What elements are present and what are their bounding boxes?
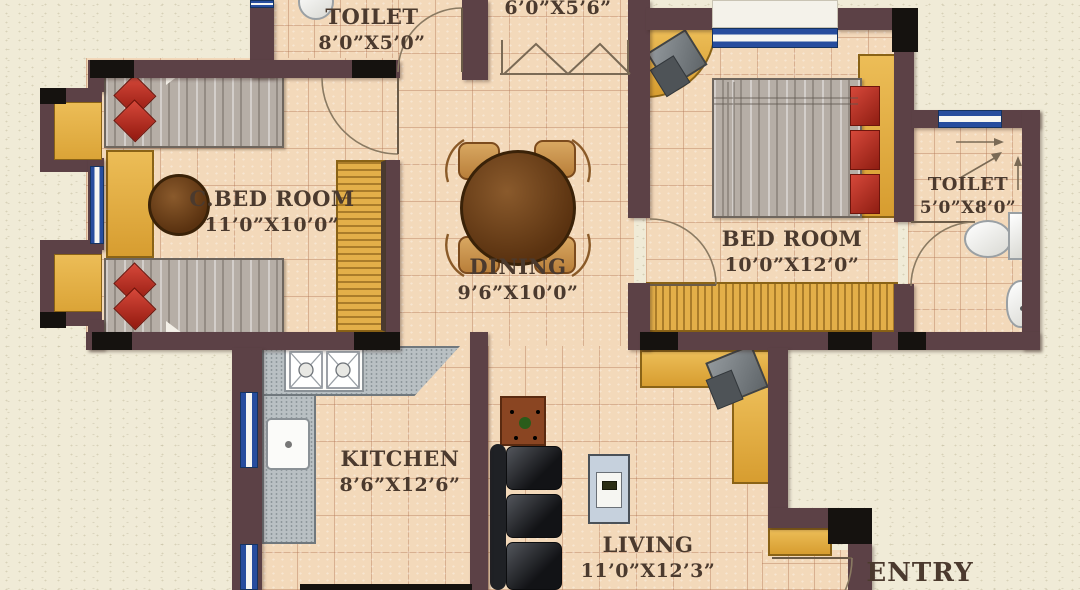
wardrobe bbox=[646, 282, 898, 332]
double-bed bbox=[712, 78, 862, 218]
window bbox=[938, 110, 1002, 128]
room-name: ENTRY bbox=[866, 558, 973, 588]
wall bbox=[462, 0, 488, 80]
wall-column bbox=[300, 584, 472, 590]
room-label-dining: DINING 9’6”X10’0” bbox=[458, 254, 579, 304]
wall-column bbox=[90, 60, 134, 78]
shoe-rack bbox=[768, 528, 832, 556]
wall-column bbox=[354, 332, 400, 350]
wall-column bbox=[40, 88, 66, 104]
room-label-toilet-1: TOILET 8’0”X5’0” bbox=[318, 4, 425, 54]
sofa-cushion bbox=[506, 542, 562, 590]
room-dims: 9’6”X10’0” bbox=[458, 282, 579, 304]
wall-column bbox=[352, 60, 396, 78]
window bbox=[240, 544, 258, 590]
wall bbox=[386, 160, 400, 332]
sofa-cushion bbox=[506, 446, 562, 490]
wall bbox=[768, 348, 788, 520]
room-dims: 8’0”X5’0” bbox=[318, 32, 425, 54]
room-dims: 11’0”X10’0” bbox=[189, 214, 354, 236]
pillow bbox=[850, 86, 880, 126]
room-label-utility: 6’0”X5’6” bbox=[504, 0, 611, 19]
room-name: C.BED ROOM bbox=[189, 186, 354, 211]
wall-column bbox=[828, 332, 872, 350]
tv-unit bbox=[588, 454, 630, 524]
floor-plan: TOILET 8’0”X5’0” 6’0”X5’6” C.BED ROOM 11… bbox=[0, 0, 1080, 590]
potted-plant bbox=[500, 396, 546, 446]
window-sill bbox=[712, 0, 838, 28]
room-label-entry: ENTRY bbox=[866, 558, 973, 588]
wall bbox=[646, 8, 714, 30]
wall-column bbox=[898, 332, 926, 350]
bay-alcove-seat bbox=[54, 254, 102, 312]
wall bbox=[836, 8, 896, 30]
room-label-c-bedroom: C.BED ROOM 11’0”X10’0” bbox=[189, 186, 354, 236]
room-label-bedroom: BED ROOM 10’0”X12’0” bbox=[722, 226, 863, 276]
room-label-kitchen: KITCHEN 8’6”X12’6” bbox=[340, 446, 461, 496]
tv-screen bbox=[596, 472, 622, 508]
wall bbox=[628, 0, 650, 218]
wall bbox=[1022, 110, 1040, 350]
wall bbox=[894, 30, 914, 222]
window bbox=[250, 0, 274, 8]
wall bbox=[470, 332, 488, 590]
kitchen-sink bbox=[266, 418, 310, 470]
pillow bbox=[112, 270, 158, 324]
wall-column bbox=[40, 312, 66, 328]
window bbox=[90, 166, 104, 244]
room-name: KITCHEN bbox=[340, 446, 461, 471]
water-closet-bowl bbox=[964, 220, 1012, 258]
nightstand bbox=[106, 150, 154, 258]
sofa-cushion bbox=[506, 494, 562, 538]
room-dims: 11’0”X12’3” bbox=[581, 560, 716, 582]
room-name: TOILET bbox=[920, 174, 1016, 195]
wall-column bbox=[828, 508, 872, 544]
room-name: DINING bbox=[458, 254, 579, 279]
window bbox=[240, 392, 258, 468]
tv-set bbox=[602, 481, 617, 490]
gas-stove bbox=[284, 348, 364, 392]
room-name: BED ROOM bbox=[722, 226, 863, 251]
room-label-living: LIVING 11’0”X12’3” bbox=[581, 532, 716, 582]
room-dims: 5’0”X8’0” bbox=[920, 198, 1016, 218]
wall-column bbox=[640, 332, 678, 350]
room-name: LIVING bbox=[581, 532, 716, 557]
pillow bbox=[850, 174, 880, 214]
plant-leaves-icon bbox=[502, 398, 548, 448]
room-dims: 10’0”X12’0” bbox=[722, 254, 863, 276]
bay-alcove-seat bbox=[54, 102, 102, 160]
pillow bbox=[112, 82, 158, 136]
wall bbox=[894, 284, 914, 334]
pillow bbox=[850, 130, 880, 170]
wall-column bbox=[92, 332, 132, 350]
room-name: TOILET bbox=[318, 4, 425, 29]
window bbox=[712, 28, 838, 48]
room-dims: 6’0”X5’6” bbox=[504, 0, 611, 19]
room-label-toilet-2: TOILET 5’0”X8’0” bbox=[920, 174, 1016, 218]
sofa-backrest bbox=[490, 444, 506, 590]
wall-column bbox=[892, 8, 918, 52]
dining-table bbox=[460, 150, 576, 266]
room-dims: 8’6”X12’6” bbox=[340, 474, 461, 496]
